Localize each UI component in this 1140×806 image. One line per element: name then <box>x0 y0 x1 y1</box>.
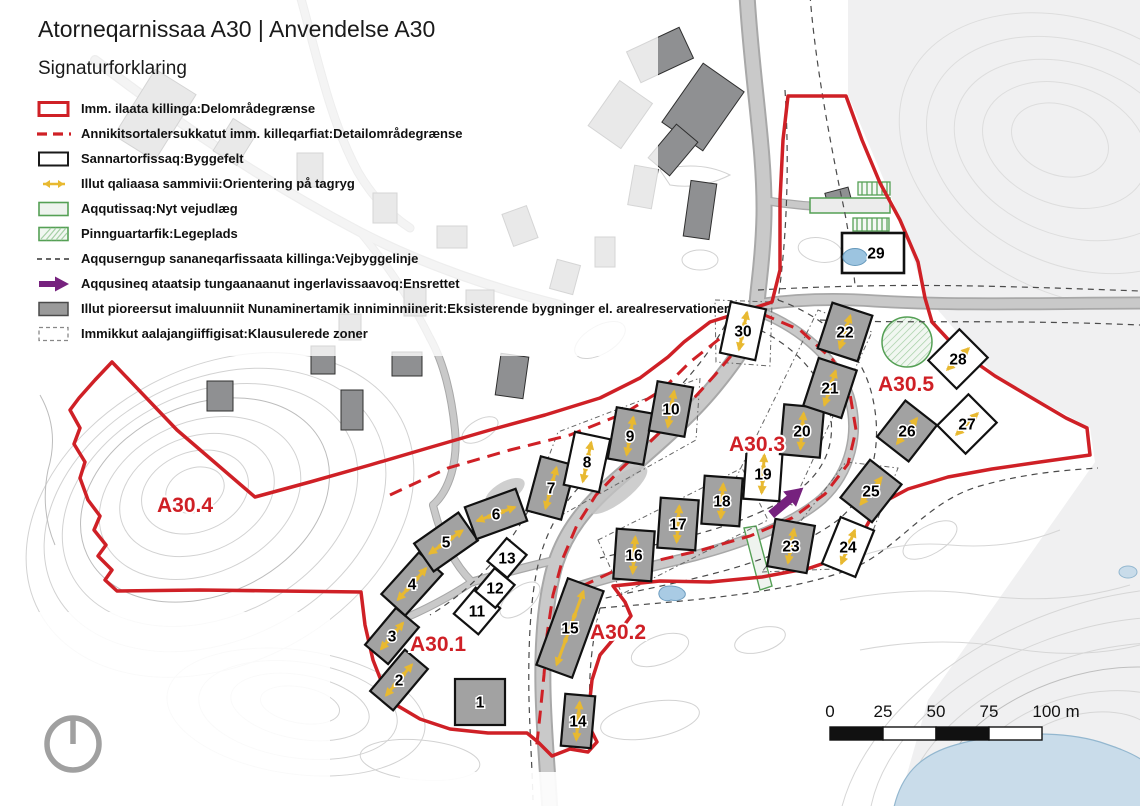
legend-item-9: Illut pioreersut imaluunniit Nunaminerta… <box>36 299 646 318</box>
new-road-area <box>810 198 890 213</box>
zone-label-A30.2: A30.2 <box>590 621 646 644</box>
building-number-17: 17 <box>669 517 686 534</box>
scale-label-3: 75 <box>980 702 999 721</box>
legend-item-7: Aqquserngup sananeqarfissaata killinga:V… <box>36 249 646 268</box>
legend-item-label: Immikkut aalajangiiffigisat:Klausulerede… <box>81 326 368 341</box>
building-number-23: 23 <box>782 539 800 556</box>
building-number-3: 3 <box>388 629 397 646</box>
rect-gray-swatch-icon <box>36 300 72 318</box>
building-number-16: 16 <box>625 548 643 565</box>
building-number-9: 9 <box>626 429 635 446</box>
legend-item-label: Imm. ilaata killinga:Delområdegrænse <box>81 101 315 116</box>
legend-item-3: Sannartorfissaq:Byggefelt <box>36 149 646 168</box>
arrow-yellow-swatch-icon <box>36 175 72 193</box>
scale-label-0: 0 <box>825 702 834 721</box>
playground-strip-2 <box>853 218 889 231</box>
scale-bar-segment <box>936 727 989 740</box>
zone-label-A30.1: A30.1 <box>410 633 466 656</box>
playground-circle <box>882 317 932 367</box>
legend-item-6: Pinnguartarfik:Legeplads <box>36 224 646 243</box>
building-number-27: 27 <box>958 417 975 434</box>
building-number-20: 20 <box>793 424 810 441</box>
pond-in-plot-29 <box>843 249 867 266</box>
building-number-7: 7 <box>547 481 556 498</box>
legend-item-10: Immikkut aalajangiiffigisat:Klausulerede… <box>36 324 646 343</box>
pond-east <box>1119 566 1137 578</box>
rect-greenhatch-swatch-icon <box>36 225 72 243</box>
scale-bar-segment <box>830 727 883 740</box>
rect-dashzone-swatch-icon <box>36 325 72 343</box>
building-number-6: 6 <box>492 507 501 524</box>
legend-item-label: Illut pioreersut imaluunniit Nunaminerta… <box>81 301 729 316</box>
building-number-18: 18 <box>713 494 731 511</box>
zone-label-A30.5: A30.5 <box>878 373 934 396</box>
building-number-4: 4 <box>408 577 417 594</box>
building-number-29: 29 <box>867 246 885 263</box>
dash-black-swatch-icon <box>36 250 72 268</box>
scale-label-1: 25 <box>874 702 893 721</box>
legend-item-label: Pinnguartarfik:Legeplads <box>81 226 238 241</box>
building-number-26: 26 <box>898 424 916 441</box>
legend-list: Imm. ilaata killinga:DelområdegrænseAnni… <box>36 99 646 349</box>
building-number-12: 12 <box>486 581 503 598</box>
building-number-22: 22 <box>836 325 853 342</box>
legend-title: Signaturforklaring <box>38 58 187 80</box>
building-number-15: 15 <box>561 621 579 638</box>
rect-green-swatch-icon <box>36 200 72 218</box>
building-number-25: 25 <box>862 484 880 501</box>
scale-label-2: 50 <box>927 702 946 721</box>
legend-item-1: Imm. ilaata killinga:Delområdegrænse <box>36 99 646 118</box>
scale-bar-segment <box>883 727 936 740</box>
page-title: Atorneqarnissaa A30 | Anvendelse A30 <box>38 16 435 43</box>
building-number-8: 8 <box>583 455 592 472</box>
building-number-2: 2 <box>395 673 404 690</box>
building-number-13: 13 <box>498 551 516 568</box>
building-number-14: 14 <box>569 714 587 731</box>
building-number-5: 5 <box>442 535 451 552</box>
building-number-19: 19 <box>754 467 772 484</box>
building-number-28: 28 <box>949 352 967 369</box>
legend-item-label: Illut qaliaasa sammivii:Orientering på t… <box>81 176 355 191</box>
zone-label-A30.3: A30.3 <box>729 433 785 456</box>
pond-small <box>659 586 686 601</box>
legend-item-2: Annikitsortalersukkatut imm. killeqarfia… <box>36 124 646 143</box>
legend-item-label: Sannartorfissaq:Byggefelt <box>81 151 244 166</box>
map-fade-bottom <box>400 772 720 806</box>
map-fade-left <box>0 612 330 806</box>
legend-item-5: Aqqutissaq:Nyt vejudlæg <box>36 199 646 218</box>
plan-map-page: 1234567891011121314151617181920212223242… <box>0 0 1140 806</box>
legend-item-label: Aqqusineq ataatsip tungaanaanut ingerlav… <box>81 276 460 291</box>
building-number-24: 24 <box>839 540 857 557</box>
legend-item-8: Aqqusineq ataatsip tungaanaanut ingerlav… <box>36 274 646 293</box>
legend-item-4: Illut qaliaasa sammivii:Orientering på t… <box>36 174 646 193</box>
building-number-30: 30 <box>734 324 751 341</box>
building-number-10: 10 <box>662 402 679 419</box>
dash-red-swatch-icon <box>36 125 72 143</box>
rect-black-swatch-icon <box>36 150 72 168</box>
outside-area-tint <box>848 0 1140 806</box>
building-number-11: 11 <box>469 604 486 621</box>
zone-label-A30.4: A30.4 <box>157 494 213 517</box>
arrow-purple-swatch-icon <box>36 275 72 293</box>
rect-red-swatch-icon <box>36 100 72 118</box>
building-number-1: 1 <box>476 695 485 712</box>
scale-bar-segment <box>989 727 1042 740</box>
legend-item-label: Aqqutissaq:Nyt vejudlæg <box>81 201 238 216</box>
legend-item-label: Aqquserngup sananeqarfissaata killinga:V… <box>81 251 418 266</box>
building-number-21: 21 <box>821 381 839 398</box>
scale-label-4: 100 m <box>1032 702 1079 721</box>
legend-item-label: Annikitsortalersukkatut imm. killeqarfia… <box>81 126 462 141</box>
